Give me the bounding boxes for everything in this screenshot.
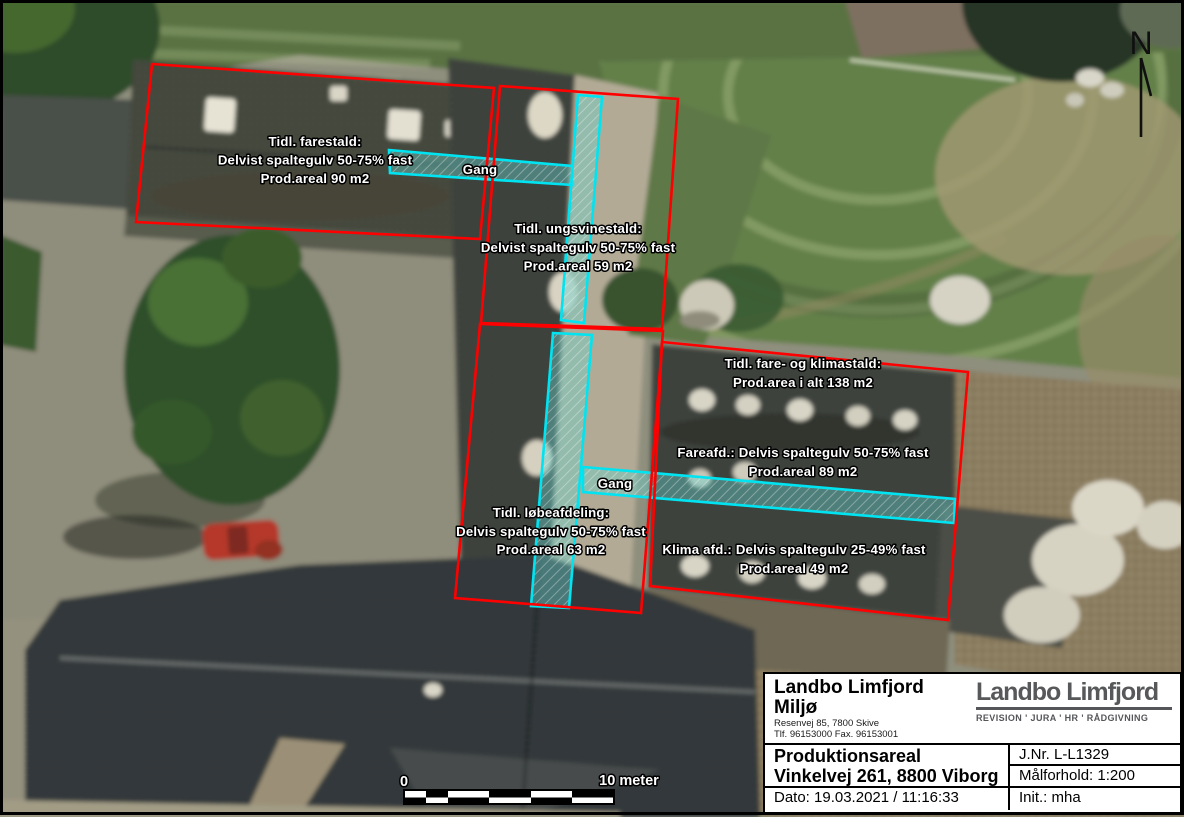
label-gang-top: Gang xyxy=(463,162,498,177)
label-line: Prod.areal 63 m2 xyxy=(497,542,606,557)
date-field: Dato: 19.03.2021 / 11:16:33 xyxy=(765,788,1010,810)
scale-end-label: 10 meter xyxy=(599,773,659,789)
label-line: Delvist spaltegulv 50-75% fast xyxy=(481,240,676,255)
scale-ratio: Målforhold: 1:200 xyxy=(1010,766,1180,785)
scale-start-label: 0 xyxy=(400,774,408,790)
label-line: Prod.areal 49 m2 xyxy=(740,561,849,576)
label-line: Tidl. farestald: xyxy=(268,134,361,149)
aerial-site-plan: Tidl. farestald: Delvist spaltegulv 50-7… xyxy=(0,0,1184,817)
company-phone: Tlf. 96153000 Fax. 96153001 xyxy=(774,729,1180,740)
title-block-footer-row: Dato: 19.03.2021 / 11:16:33 Init.: mha xyxy=(765,788,1180,810)
label-line: Tidl. løbeafdeling: xyxy=(493,505,609,520)
title-block: Landbo Limfjord Miljø Resenvej 85, 7800 … xyxy=(763,672,1182,814)
label-line: Fareafd.: Delvis spaltegulv 50-75% fast xyxy=(677,445,929,460)
project-title: Produktionsareal xyxy=(774,746,1008,766)
label-line: Klima afd.: Delvis spaltegulv 25-49% fas… xyxy=(662,542,926,557)
label-line: Prod.areal 90 m2 xyxy=(261,171,370,186)
label-line: Prod.areal 59 m2 xyxy=(524,259,633,274)
logo-tagline: REVISION ' JURA ' HR ' RÅDGIVNING xyxy=(976,713,1172,723)
label-gang-right: Gang xyxy=(598,476,633,491)
label-line: Tidl. ungsvinestald: xyxy=(514,221,642,236)
journal-number: J.Nr. L-L1329 xyxy=(1010,745,1180,766)
company-logo: Landbo Limfjord REVISION ' JURA ' HR ' R… xyxy=(976,679,1172,723)
building-farestald-roof xyxy=(126,60,498,240)
label-line: Prod.areal 89 m2 xyxy=(749,464,858,479)
label-line: Delvist spaltegulv 50-75% fast xyxy=(218,153,413,168)
initials-field: Init.: mha xyxy=(1010,788,1081,810)
north-label: N xyxy=(1129,25,1152,61)
red-car xyxy=(202,519,284,564)
project-address: Vinkelvej 261, 8800 Viborg xyxy=(774,766,1008,786)
label-line: Prod.area i alt 138 m2 xyxy=(733,375,873,390)
logo-wordmark: Landbo Limfjord xyxy=(976,679,1172,710)
title-block-header: Landbo Limfjord Miljø Resenvej 85, 7800 … xyxy=(765,674,1180,745)
title-block-project-row: Produktionsareal Vinkelvej 261, 8800 Vib… xyxy=(765,745,1180,788)
label-line: Delvis spaltegulv 50-75% fast xyxy=(456,524,646,539)
project-cell: Produktionsareal Vinkelvej 261, 8800 Vib… xyxy=(765,745,1010,786)
label-line: Tidl. fare- og klimastald: xyxy=(725,356,882,371)
